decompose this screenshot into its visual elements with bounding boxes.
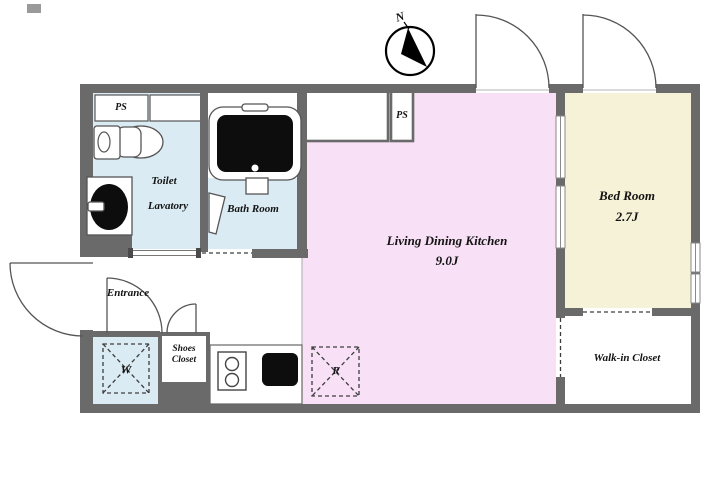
- room-label-entrance: Entrance: [107, 288, 149, 300]
- room-label-shoes-closet-2: Closet: [172, 355, 196, 365]
- floor-plan-drawing: [0, 0, 709, 491]
- door-arc-balcony-bedroom: [583, 15, 656, 88]
- wall-top-middle: [549, 84, 583, 93]
- room-size-ldk: 9.0J: [436, 254, 459, 268]
- lavatory-cabinet-box: [150, 95, 207, 121]
- wall-top-left: [80, 84, 476, 93]
- bathtub-handle: [242, 104, 268, 111]
- floor-plan: PS PS Toilet Lavatory Bath Room Entrance…: [0, 0, 709, 491]
- refrigerator-mark-label: R: [332, 366, 339, 378]
- room-label-bedroom: Bed Room: [599, 189, 655, 203]
- bathtub-icon: [209, 104, 301, 180]
- door-arc-balcony-ldk: [476, 15, 549, 88]
- toilet-icon: [94, 126, 163, 159]
- washer-mark-label: W: [121, 364, 132, 377]
- sliding-door-lavatory: [128, 248, 201, 258]
- wall-left-lower: [80, 330, 93, 413]
- sink-faucet: [88, 202, 104, 211]
- wall-washer-niche-top: [93, 331, 160, 337]
- bath-counter-notch: [246, 178, 268, 194]
- kitchen-cupboard-box: [305, 91, 388, 141]
- sliding-door-jamb-left: [128, 248, 133, 258]
- bathtub-basin: [217, 115, 293, 172]
- room-label-toilet: Toilet: [151, 176, 176, 188]
- room-label-ldk: Living Dining Kitchen: [387, 234, 508, 248]
- wall-lavatory-bath: [200, 93, 208, 252]
- stove-burner-2: [226, 374, 239, 387]
- wall-lavatory-corner: [80, 233, 132, 257]
- wall-bottom: [80, 404, 700, 413]
- wall-bath-bottom: [252, 249, 308, 258]
- door-arc-entrance: [10, 263, 83, 336]
- room-label-bathroom: Bath Room: [227, 204, 279, 216]
- kitchen-counter: [210, 345, 302, 404]
- room-label-lavatory: Lavatory: [148, 201, 188, 213]
- room-label-ps-kitchen: PS: [396, 111, 408, 122]
- sliding-door-jamb-right: [196, 248, 201, 258]
- room-label-shoes-closet-1: Shoes: [172, 344, 195, 354]
- room-size-bedroom: 2.7J: [616, 210, 639, 224]
- kitchen-sink-icon: [262, 353, 298, 386]
- bathtub-drain: [252, 165, 259, 172]
- sink-icon: [87, 177, 132, 235]
- scan-artifact-mark: [27, 4, 41, 13]
- room-label-walk-in-closet: Walk-in Closet: [594, 353, 661, 365]
- stove-burner-1: [226, 358, 239, 371]
- room-label-ps-lavatory: PS: [115, 103, 127, 114]
- north-compass-icon: [386, 22, 434, 75]
